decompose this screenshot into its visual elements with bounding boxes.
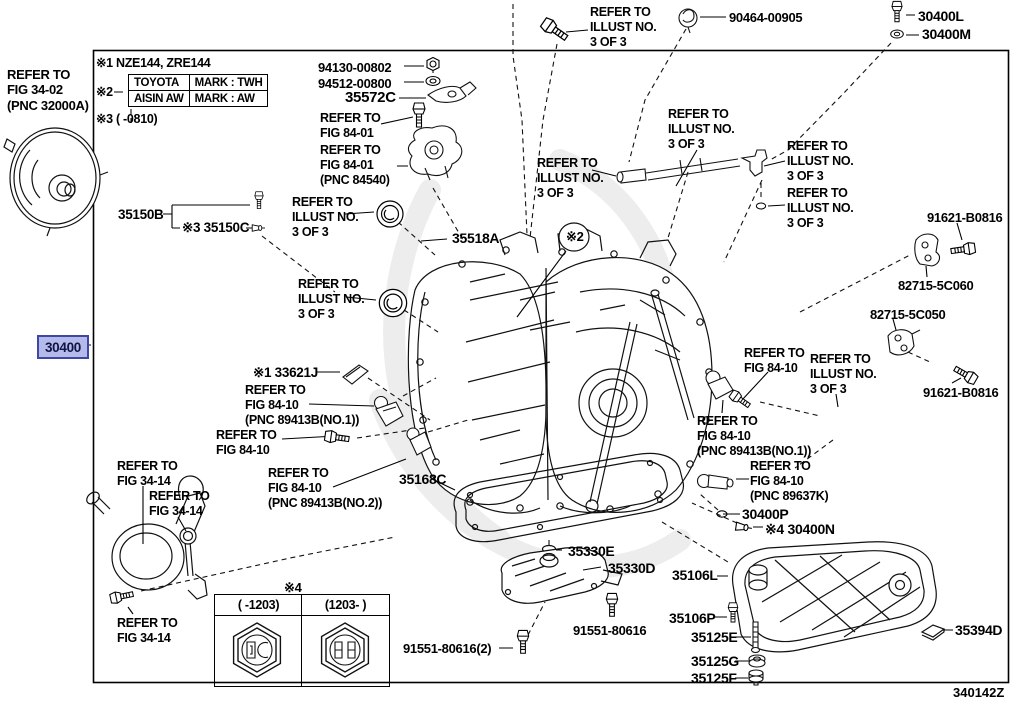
part-35125E[interactable]: 35125E — [691, 629, 737, 646]
refer-fig-84-10-no2: REFER TO FIG 84-10 (PNC 89413B(NO.2)) — [268, 466, 382, 510]
mark-table-mark-1: MARK : AW — [189, 91, 268, 107]
refer-illust-seal-right: REFER TO ILLUST NO. 3 OF 3 — [810, 352, 876, 396]
part-35106L[interactable]: 35106L — [672, 567, 718, 584]
part-82715-5C050[interactable]: 82715-5C050 — [870, 307, 946, 322]
hex-bolt-table: ( -1203) (1203- ) — [214, 594, 390, 687]
hex-table-col-1: ( -1203) — [215, 595, 302, 615]
part-91621-B0816-a[interactable]: 91621-B0816 — [927, 210, 1003, 225]
part-35330D[interactable]: 35330D — [608, 560, 655, 577]
part-94130-00802[interactable]: 94130-00802 — [318, 60, 391, 75]
part-35125G[interactable]: 35125G — [691, 653, 739, 670]
part-90464-00905[interactable]: 90464-00905 — [729, 10, 802, 25]
refer-fig-34-14-a: REFER TO FIG 34-14 — [117, 459, 178, 489]
mark-table-maker-1: AISIN AW — [129, 91, 190, 107]
refer-fig-84-10-no1-left: REFER TO FIG 84-10 (PNC 89413B(NO.1)) — [245, 383, 359, 427]
highlighted-part-30400[interactable]: 30400 — [37, 335, 89, 359]
part-91621-B0816-b[interactable]: 91621-B0816 — [923, 385, 999, 400]
refer-fig-84-10-no1-right: REFER TO FIG 84-10 (PNC 89413B(NO.1)) — [697, 414, 811, 458]
hex-table-divider — [301, 595, 302, 686]
hex-table-col-2: (1203- ) — [302, 595, 389, 615]
refer-illust-oring: REFER TO ILLUST NO. 3 OF 3 — [787, 186, 853, 230]
refer-illust-top: REFER TO ILLUST NO. 3 OF 3 — [590, 5, 656, 49]
refer-fig-84-01-a: REFER TO FIG 84-01 — [320, 111, 381, 141]
refer-fig-84-10-bolt: REFER TO FIG 84-10 — [216, 428, 277, 458]
part-30400N[interactable]: ※4 30400N — [765, 521, 835, 538]
refer-fig-34-02: REFER TO FIG 34-02 (PNC 32000A) — [7, 67, 89, 113]
part-30400M[interactable]: 30400M — [922, 26, 971, 43]
part-35330E[interactable]: 35330E — [568, 543, 614, 560]
refer-fig-84-10-right: REFER TO FIG 84-10 — [744, 346, 805, 376]
part-91551-80616-2[interactable]: 91551-80616(2) — [403, 641, 491, 656]
part-35518A[interactable]: 35518A — [452, 230, 499, 247]
part-35106P[interactable]: 35106P — [669, 610, 715, 627]
note-1: ※1 NZE144, ZRE144 — [96, 56, 210, 71]
part-91551-80616[interactable]: 91551-80616 — [573, 623, 646, 638]
part-82715-5C060[interactable]: 82715-5C060 — [898, 278, 974, 293]
balloon-note: ※2 — [566, 229, 584, 244]
refer-fig-84-10-89637K: REFER TO FIG 84-10 (PNC 89637K) — [750, 459, 828, 503]
part-30400L[interactable]: 30400L — [918, 8, 964, 25]
diagram-id: 340142Z — [953, 685, 1004, 700]
refer-illust-tube-left: REFER TO ILLUST NO. 3 OF 3 — [537, 156, 603, 200]
part-35150C[interactable]: ※3 35150C — [182, 220, 249, 236]
refer-illust-seal-upper: REFER TO ILLUST NO. 3 OF 3 — [292, 195, 358, 239]
refer-fig-84-01-b: REFER TO FIG 84-01 (PNC 84540) — [320, 143, 390, 187]
parts-diagram-page: REFER TO FIG 34-02 (PNC 32000A)35150B※3 … — [0, 0, 1024, 707]
refer-illust-tube-right: REFER TO ILLUST NO. 3 OF 3 — [787, 139, 853, 183]
part-35168C[interactable]: 35168C — [399, 471, 446, 488]
part-33621J[interactable]: ※1 33621J — [253, 365, 318, 381]
note-2-marker: ※2 — [96, 85, 113, 100]
mark-table-maker-0: TOYOTA — [129, 75, 190, 91]
part-35125F[interactable]: 35125F — [691, 670, 737, 687]
refer-fig-34-14-c: REFER TO FIG 34-14 — [117, 616, 178, 646]
part-35150B[interactable]: 35150B — [118, 207, 164, 223]
mark-table-mark-0: MARK : TWH — [189, 75, 268, 91]
refer-illust-seal-lower: REFER TO ILLUST NO. 3 OF 3 — [298, 277, 364, 321]
part-35572C[interactable]: 35572C — [345, 89, 396, 107]
refer-illust-tube-center: REFER TO ILLUST NO. 3 OF 3 — [668, 107, 734, 151]
part-35394D[interactable]: 35394D — [955, 622, 1002, 639]
refer-fig-34-14-b: REFER TO FIG 34-14 — [149, 489, 210, 519]
mark-table: TOYOTA MARK : TWH AISIN AW MARK : AW — [128, 74, 268, 107]
note-3: ※3 ( -0810) — [96, 112, 157, 127]
